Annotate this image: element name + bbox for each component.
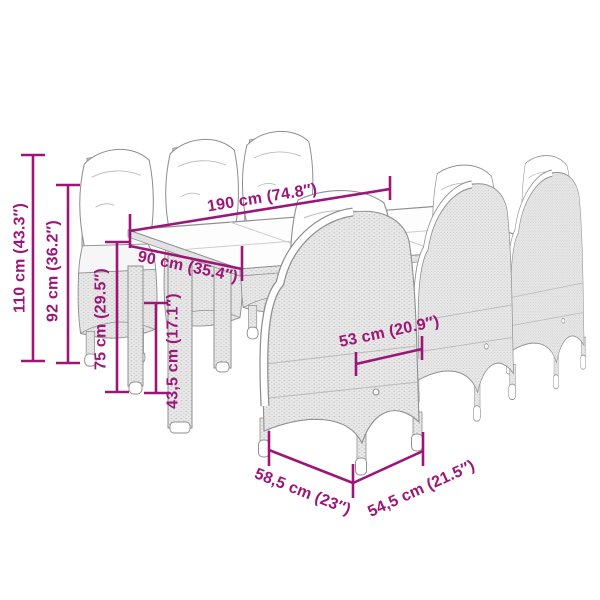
dimension-label-chair-width: 54,5 cm (21.5″)	[365, 457, 477, 520]
dimension-backrest-height: 92 cm (36.2″)	[45, 185, 80, 363]
front-chair-2	[412, 165, 515, 421]
furniture-dimension-diagram: 110 cm (43.3″) 92 cm (36.2″) 75 cm (29.5…	[0, 0, 600, 600]
front-chair-3	[506, 156, 586, 389]
product-dimension-image: 110 cm (43.3″) 92 cm (36.2″) 75 cm (29.5…	[0, 0, 600, 600]
dimension-label-table-height: 75 cm (29.5″)	[93, 268, 110, 370]
dimension-label-total-height: 110 cm (43.3″)	[12, 203, 29, 313]
dimension-label-chair-depth: 58,5 cm (23″)	[252, 465, 353, 518]
dimension-total-height: 110 cm (43.3″)	[12, 155, 45, 361]
dimension-label-seat-height: 43,5 cm (17.1″)	[165, 293, 182, 409]
dimension-label-backrest-height: 92 cm (36.2″)	[45, 220, 62, 322]
